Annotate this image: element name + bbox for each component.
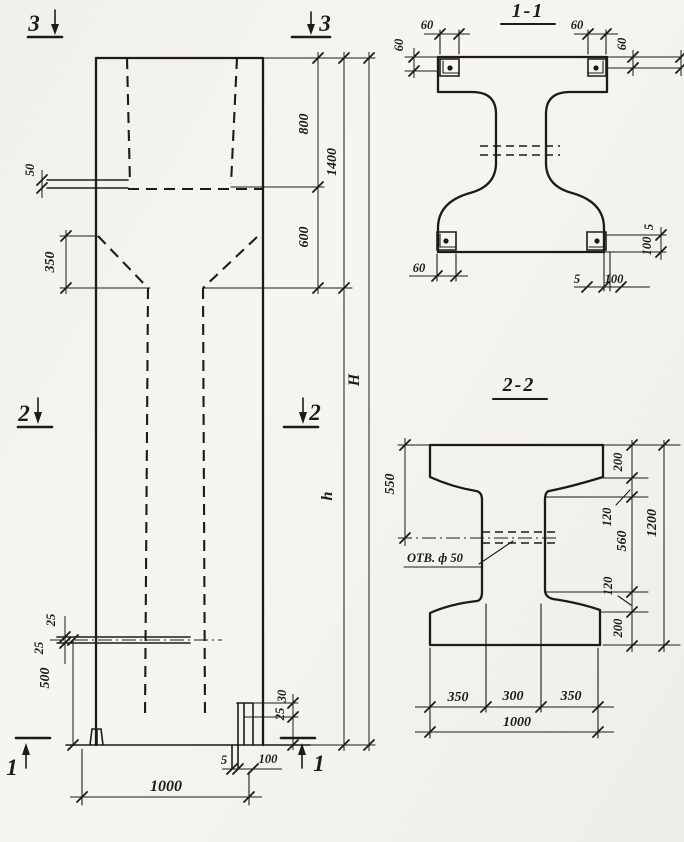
marker-1-right-label: 1	[313, 751, 325, 776]
dim-shoe-30-25: 30 25	[253, 689, 298, 750]
dim-1000-elevation: 1000	[70, 749, 262, 805]
dim-200-bot-label: 200	[611, 618, 625, 639]
dim-100-label: 100	[259, 752, 279, 766]
dim-25-shoe-label: 25	[273, 708, 287, 722]
down-arrow-icon	[51, 24, 59, 35]
technical-drawing: 3 3 2 2 1	[0, 0, 684, 842]
section-1-1-title: 1-1	[512, 0, 545, 22]
dim-500-label: 500	[38, 668, 53, 689]
embedded-plate-bottom-left	[437, 232, 456, 250]
dim-50: 50	[23, 163, 47, 198]
up-arrow-icon	[22, 743, 30, 755]
dim-350-label: 350	[43, 252, 58, 274]
drawing-sheet: 3 3 2 2 1	[0, 0, 684, 842]
dim-200-top-label: 200	[611, 452, 625, 473]
top-recess-hidden-lines	[127, 58, 262, 189]
right-dim-chain: 800 600 1400 h H	[203, 52, 375, 751]
plate-strip-top-left	[405, 57, 438, 71]
plate-strip-top-right	[607, 57, 681, 68]
dim-550: 550	[383, 438, 430, 546]
dim-120-bot-label: 120	[601, 576, 615, 596]
dim-5-label: 5	[221, 753, 227, 767]
dim-120-top-label: 120	[600, 507, 614, 527]
dim-350-right-label: 350	[560, 689, 582, 704]
section-1-1: 1-1	[392, 0, 684, 292]
base-shoe-right	[232, 703, 253, 769]
marker-3-right-label: 3	[318, 11, 331, 36]
dim-label: 100	[640, 236, 654, 256]
dim-1000-bottom-label: 1000	[503, 715, 531, 730]
dim-550-label: 550	[383, 474, 398, 495]
dim-800-label: 800	[297, 114, 312, 135]
section-2-2-right-chain: 200 120 560 120 200 1200	[545, 440, 680, 652]
section-marker-2-right: 2	[284, 398, 321, 427]
dim-1400-label: 1400	[325, 148, 340, 176]
section-marker-1-right: 1	[281, 738, 325, 776]
elevation-view: 3 3 2 2 1	[6, 10, 375, 805]
section-marker-3-left: 3	[27, 10, 62, 37]
dim-label: 5	[574, 272, 580, 286]
dim-label: 60	[392, 38, 406, 51]
dim-350-left-label: 350	[447, 690, 469, 705]
down-arrow-icon	[34, 412, 42, 424]
dim-60-bottom-left: 60	[409, 254, 468, 281]
section-marker-3-right: 3	[292, 11, 331, 37]
web-taper-hidden-lines	[98, 236, 257, 718]
dim-30-label: 30	[275, 689, 289, 703]
dim-label: 100	[605, 272, 625, 286]
down-arrow-icon	[307, 24, 315, 35]
web-hole	[398, 532, 560, 543]
dim-300-label: 300	[502, 689, 524, 704]
section-2-2: 2-2 ОТВ. ф 50 550	[383, 374, 680, 738]
hole-callout: ОТВ. ф 50	[404, 541, 513, 567]
dim-560-label: 560	[615, 531, 630, 552]
section-2-2-outline	[430, 445, 603, 645]
dim-label: 60	[615, 37, 629, 50]
base-shoe-left	[90, 729, 103, 745]
column-outline	[96, 58, 263, 745]
dim-shoe-5-100: 5 100	[221, 752, 282, 774]
dim-label: 5	[642, 224, 656, 230]
dim-25-lower-label: 25	[32, 642, 46, 656]
recess-ledge-plate	[47, 180, 128, 188]
dim-label: 60	[421, 18, 434, 32]
section-marker-2-left: 2	[17, 398, 52, 427]
down-arrow-icon	[299, 412, 307, 424]
section-marker-1-left: 1	[6, 738, 50, 780]
marker-2-left-label: 2	[17, 401, 30, 426]
section-2-2-bottom-dims: 350 300 350 1000	[415, 604, 614, 738]
marker-2-right-label: 2	[308, 400, 321, 425]
dim-50-label: 50	[23, 163, 37, 176]
web-hole-hidden-lines	[480, 146, 560, 155]
dim-1000-label: 1000	[150, 778, 182, 795]
dim-h-label: h	[319, 491, 336, 500]
dim-1200-label: 1200	[645, 509, 660, 537]
marker-1-left-label: 1	[6, 755, 18, 780]
dim-25-upper-label: 25	[44, 614, 58, 628]
dim-25-25: 25 25	[32, 614, 70, 664]
embedded-plate-top-right	[588, 59, 606, 76]
section-2-2-title: 2-2	[502, 374, 536, 396]
dim-600-label: 600	[297, 227, 312, 248]
dim-label: 60	[571, 18, 584, 32]
embedded-plate-top-left	[440, 59, 459, 76]
dim-H-label: H	[346, 373, 363, 387]
marker-3-left-label: 3	[27, 11, 40, 36]
hole-label: ОТВ. ф 50	[407, 551, 464, 565]
dim-label: 60	[413, 261, 426, 275]
